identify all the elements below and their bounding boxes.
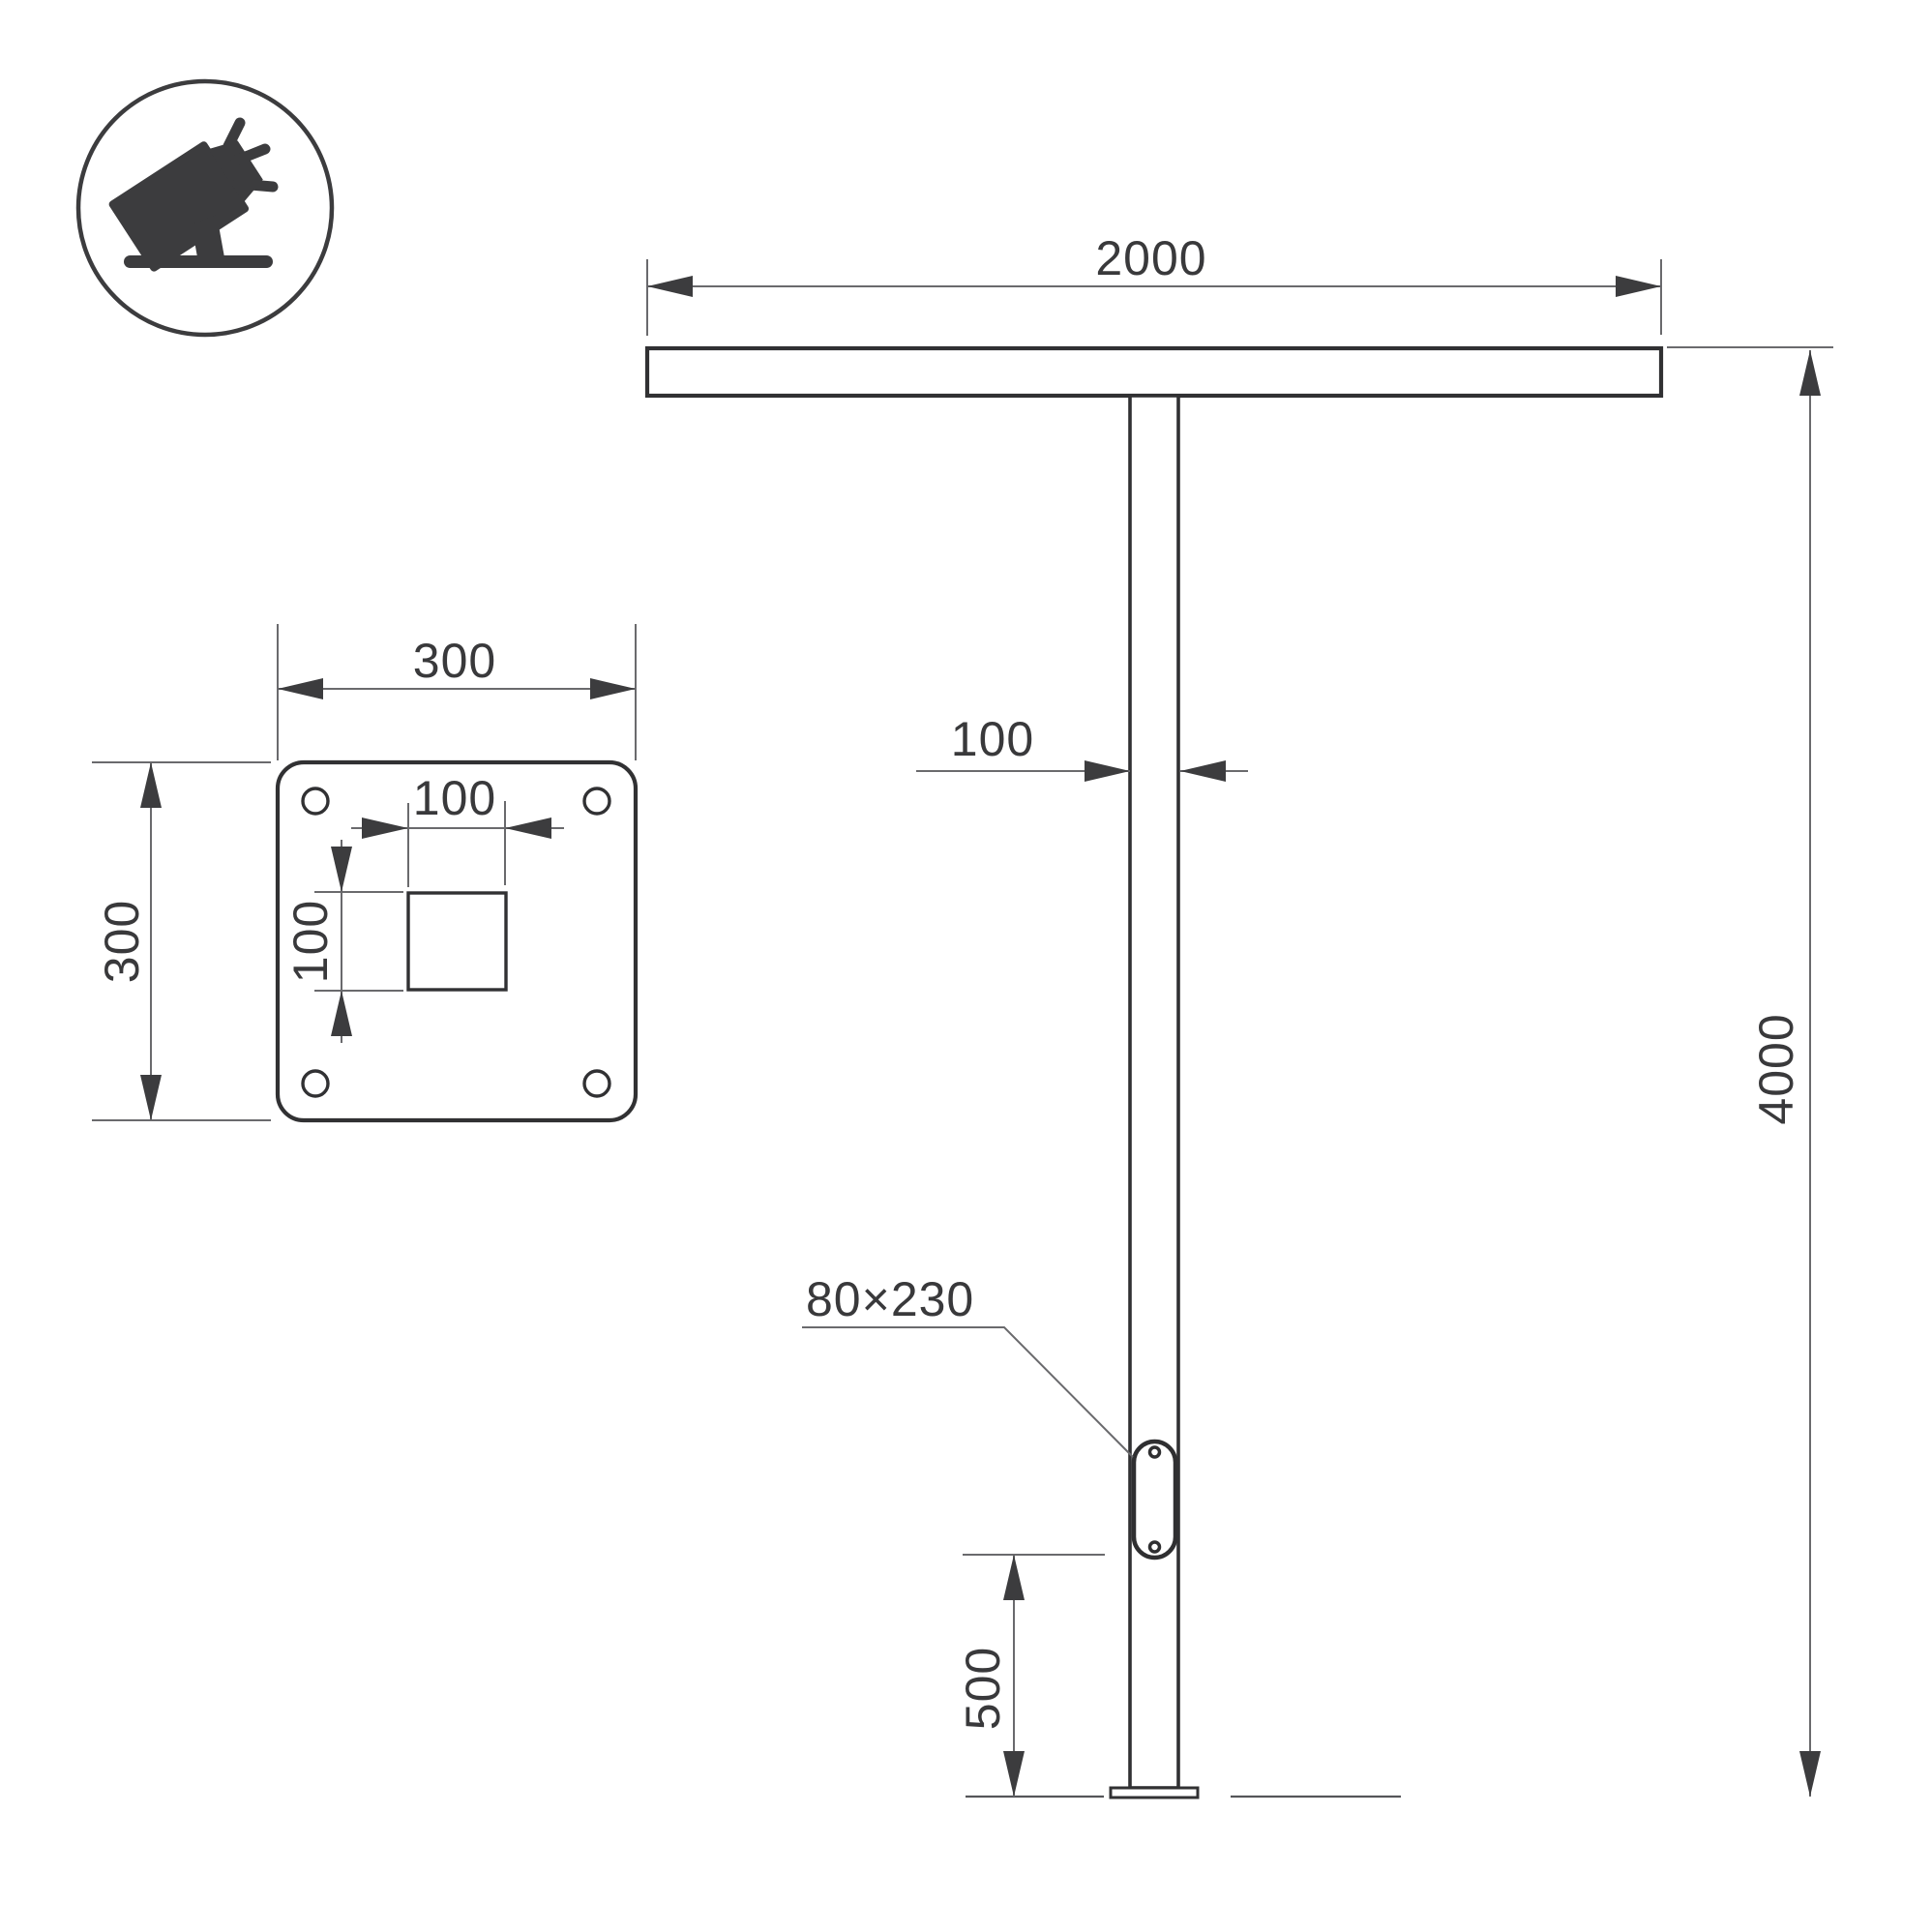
- dim-label-crossbar-width: 2000: [1095, 231, 1206, 285]
- arrow-down-icon: [140, 1075, 162, 1120]
- arrow-up-icon: [1799, 350, 1821, 396]
- arrow-left-icon: [1180, 760, 1226, 782]
- front-view: [647, 348, 1661, 1798]
- access-hatch-oval: [1134, 1442, 1175, 1558]
- arrow-up-icon: [1003, 1555, 1025, 1600]
- arrow-left-icon: [278, 678, 323, 699]
- arrow-right-icon: [590, 678, 636, 699]
- dim-label-hatch-size: 80×230: [806, 1272, 974, 1326]
- dim-label-plate-height: 300: [95, 900, 149, 983]
- dim-hatch-offset: 500: [956, 1555, 1105, 1797]
- arrow-right-icon: [1085, 760, 1130, 782]
- arrow-down-icon: [1799, 1751, 1821, 1797]
- leader-hatch-size: 80×230: [802, 1272, 1133, 1457]
- technical-drawing-page: 2000 4000 100 500 80×230: [0, 0, 1932, 1932]
- dim-plate-width: 300: [278, 624, 636, 760]
- arrow-left-icon: [647, 276, 693, 297]
- dim-label-hole-height: 100: [283, 900, 338, 983]
- arrow-down-icon: [1003, 1751, 1025, 1797]
- dim-pole-height: 4000: [1667, 347, 1833, 1797]
- floodlight-icon: [78, 81, 332, 335]
- dim-plate-height: 300: [92, 762, 271, 1120]
- pole-drawing-svg: 2000 4000 100 500 80×230: [0, 0, 1932, 1932]
- dim-pole-width: 100: [916, 712, 1248, 782]
- plate-center-hole: [408, 893, 506, 990]
- leader-line: [802, 1327, 1133, 1457]
- dim-label-plate-width: 300: [413, 634, 496, 688]
- arrow-right-icon: [1616, 276, 1661, 297]
- floodlight-base: [124, 255, 273, 268]
- dim-label-hatch-offset: 500: [956, 1647, 1010, 1730]
- dim-label-pole-width: 100: [951, 712, 1034, 766]
- pole: [1130, 396, 1178, 1788]
- dim-label-pole-height: 4000: [1749, 1013, 1803, 1124]
- dim-crossbar-width: 2000: [647, 231, 1661, 336]
- floodlight-head: [107, 125, 273, 273]
- arrow-up-icon: [140, 762, 162, 808]
- dim-label-hole-width: 100: [413, 771, 496, 825]
- base-flange: [1111, 1788, 1198, 1798]
- crossbar: [647, 348, 1661, 396]
